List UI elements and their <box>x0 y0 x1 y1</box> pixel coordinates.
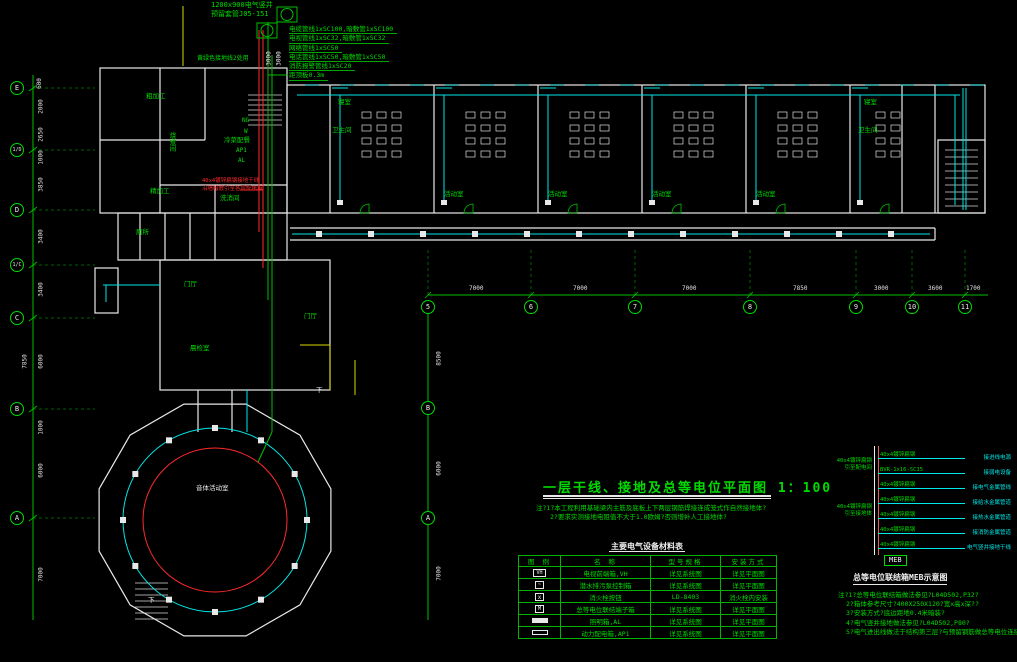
room-label: 厕所 <box>136 228 149 236</box>
meb-target-label: 接电气金属管线 <box>972 483 1011 491</box>
axis-bubble-10: 10 <box>905 300 919 314</box>
dimension-label: 7000 <box>469 285 483 292</box>
axis-bubble-D: D <box>10 203 24 217</box>
riser-dim-1: 3000 <box>266 51 273 65</box>
dimension-label: 3850 <box>38 177 45 191</box>
meb-row: 40x4镀锌扁钢接电气金属管线 <box>879 476 1005 491</box>
table-row: x消火栓按钮LD-8403消火栓内安装 <box>519 591 777 603</box>
equipment-table-title-text: 主要电气设备材料表 <box>609 542 685 552</box>
axis-bubble-1/C: 1/C <box>10 258 24 272</box>
lighting-box-icon <box>519 615 561 627</box>
meb-row: BVR-1x16-SC15接弱电设备 <box>879 461 1005 476</box>
meb-row: 40x4镀锌扁钢接进线电源 <box>879 446 1005 461</box>
table-header: 型号规格 <box>651 556 721 567</box>
grounding-red-group <box>143 30 287 592</box>
meb-conductor-spec: 40x4镀锌扁钢 <box>880 510 915 518</box>
ground-busbar-note-line1: 40x4镀锌扁钢接地干线 <box>202 176 259 184</box>
axis-bubble-7: 7 <box>628 300 642 314</box>
cell-install: 详见平面图 <box>721 627 777 639</box>
axis-bubble-inner-A: A <box>421 511 435 525</box>
meb-target-label: 电气竖井接地干线 <box>967 543 1011 551</box>
cell-name: 电视前端箱,VH <box>561 567 651 579</box>
meb-row: 40x4镀锌扁钢电气竖井接地干线 <box>879 536 1005 551</box>
door-swings-group <box>360 204 889 213</box>
dimension-label: 7000 <box>682 285 696 292</box>
cable-spec-line: 电缆管线1xSC100,暗敷管1xSC100 <box>289 25 397 34</box>
meb-note-line: 3?安装方式?底边距地0.4米暗装? <box>838 609 1017 618</box>
side-note: 黄绿色接地线2处用 <box>197 55 249 62</box>
meb-target-label: 接消防金属管道 <box>972 528 1011 536</box>
axis-bubble-11: 11 <box>958 300 972 314</box>
riser-label: AP1 <box>236 147 247 154</box>
equipment-table-title: 主要电气设备材料表 <box>518 541 776 552</box>
cell-model: 详见系统图 <box>651 603 721 615</box>
table-header: 图 例 <box>519 556 561 567</box>
meb-conductor-line <box>878 533 965 534</box>
cell-name: 照明箱,AL <box>561 615 651 627</box>
drawing-notes: 注?1?本工程利用基础梁内主筋及底板上下两层钢筋焊接连成笼式作自然接地体? 2?… <box>536 504 766 521</box>
axis-bubble-B: B <box>10 402 24 416</box>
table-row: ~潜水排污泵控制箱详见系统图详见平面图 <box>519 579 777 591</box>
room-label: 活动室 <box>444 190 464 198</box>
dimension-label: 3400 <box>38 229 45 243</box>
axis-bubble-6: 6 <box>524 300 538 314</box>
meb-bus-bottom-label-2: 引至接地体 <box>832 511 872 518</box>
meb-caption: 总等电位联结箱MEB示意图 <box>853 572 947 585</box>
columns-group <box>120 200 894 615</box>
dimension-label: 1000 <box>38 150 45 164</box>
room-label: 冷菜配餐 <box>224 136 250 144</box>
room-label: 晨检室 <box>190 344 210 352</box>
room-label: 活动室 <box>652 190 672 198</box>
riser-label: AL <box>238 157 245 164</box>
cell-model: 详见系统图 <box>651 567 721 579</box>
room-label: 卫生间 <box>858 126 878 134</box>
room-label: 洗消间 <box>220 194 240 202</box>
meb-bus-top-label-2: 引至配电间 <box>832 465 872 472</box>
meb-note-line: 注?1?总等电位联结箱做法参见?L04D502,P32? <box>838 591 1017 600</box>
cell-model: LD-8403 <box>651 591 721 603</box>
dimension-label: 7000 <box>573 285 587 292</box>
room-label: 寝室 <box>864 98 877 106</box>
axis-bubble-8: 8 <box>743 300 757 314</box>
room-label: 活动室 <box>548 190 568 198</box>
cell-name: 消火栓按钮 <box>561 591 651 603</box>
meb-target-label: 接弱电设备 <box>983 468 1011 476</box>
meb-bus-bottom-label-1: 40x4镀锌扁钢 <box>832 504 872 511</box>
ground-busbar-note-line2: 沿墙暗敷引至各层配电箱 <box>202 184 263 192</box>
cell-install: 详见平面图 <box>721 567 777 579</box>
cell-model: 详见系统图 <box>651 579 721 591</box>
meb-box-icon: M <box>519 603 561 615</box>
meb-conductor-line <box>878 473 965 474</box>
cell-name: 潜水排污泵控制箱 <box>561 579 651 591</box>
meb-note-line: 5?电气进出线做法于结构第三层?与预留钢筋做总等电位连接? <box>838 628 1017 637</box>
axis-bubble-5: 5 <box>421 300 435 314</box>
meb-conductor-line <box>878 503 965 504</box>
cable-spec-line: 网络管线1xSC50 <box>289 44 342 53</box>
cell-install: 详见平面图 <box>721 615 777 627</box>
dimension-label: 7850 <box>793 285 807 292</box>
meb-conductor-spec: 40x4镀锌扁钢 <box>880 525 915 533</box>
table-row: M总等电位联结端子箱详见系统图详见平面图 <box>519 603 777 615</box>
power-box-icon <box>519 627 561 639</box>
room-label: 门厅 <box>184 280 197 288</box>
meb-conductor-line <box>878 518 965 519</box>
room-label: 音体活动室 <box>196 484 229 492</box>
room-label: 下 <box>316 386 323 394</box>
meb-box: MEB <box>884 555 907 566</box>
dimension-label: 7000 <box>436 566 443 580</box>
riser-label: W <box>244 128 248 135</box>
dimension-label: 6000 <box>38 354 45 368</box>
dimension-label: 7850 <box>22 354 29 368</box>
cell-name: 总等电位联结端子箱 <box>561 603 651 615</box>
classroom-desks-group <box>362 112 900 157</box>
meb-bus-top-label: 40x4镀锌扁钢 引至配电间 <box>832 458 872 471</box>
meb-schematic: 40x4镀锌扁钢接进线电源BVR-1x16-SC15接弱电设备40x4镀锌扁钢接… <box>836 446 1012 566</box>
meb-bus-bottom-label: 40x4镀锌扁钢 引至接地体 <box>832 504 872 517</box>
meb-conductor-line <box>878 458 965 459</box>
dimension-label: 1000 <box>38 420 45 434</box>
axis-bubble-A: A <box>10 511 24 525</box>
room-label: 烧煮间 <box>168 132 176 152</box>
dimension-label: 8500 <box>436 351 443 365</box>
cable-spec-line: 电话管线1xSC50,暗敷管1xSC50 <box>289 53 389 62</box>
dimension-label: 2650 <box>38 127 45 141</box>
meb-conductor-line <box>878 488 965 489</box>
drawing-note-1: 注?1?本工程利用基础梁内主筋及底板上下两层钢筋焊接连成笼式作自然接地体? <box>536 504 766 513</box>
cable-spec-list: 电缆管线1xSC100,暗敷管1xSC100电视管线1xSC32,暗敷管1xSC… <box>289 25 397 81</box>
shaft-label-line1: 1200x900电气竖井 <box>211 1 273 9</box>
hydrant-button-icon: x <box>519 591 561 603</box>
table-header: 名 称 <box>561 556 651 567</box>
meb-target-label: 接进线电源 <box>983 453 1011 461</box>
cell-install: 消火栓内安装 <box>721 591 777 603</box>
cell-install: 详见平面图 <box>721 579 777 591</box>
room-label: 门厅 <box>304 312 317 320</box>
cable-spec-line: 距顶板0.3m <box>289 71 328 80</box>
pump-box-icon: ~ <box>519 579 561 591</box>
meb-notes: 注?1?总等电位联结箱做法参见?L04D502,P32?2?箱体参考尺寸?400… <box>838 591 1017 637</box>
cad-drawing-canvas: 1200x900电气竖井 预留套管J05-151 电缆管线1xSC100,暗敷管… <box>0 0 1017 662</box>
room-label: 下 <box>148 596 155 604</box>
meb-target-label: 接给水金属管道 <box>972 498 1011 506</box>
meb-row: 40x4镀锌扁钢接热水金属管道 <box>879 506 1005 521</box>
meb-note-line: 4?电气竖井接地做法参见?L04D502,P80? <box>838 619 1017 628</box>
meb-row: 40x4镀锌扁钢接给水金属管道 <box>879 491 1005 506</box>
drawing-title: 一层干线、接地及总等电位平面图 1：100 <box>543 477 832 496</box>
table-row: 照明箱,AL详见系统图详见平面图 <box>519 615 777 627</box>
meb-conductor-spec: BVR-1x16-SC15 <box>880 467 923 473</box>
dimension-label: 2000 <box>38 99 45 113</box>
equipment-table: 图 例名 称型号规格安装方式 VH电视前端箱,VH详见系统图详见平面图~潜水排污… <box>518 555 777 639</box>
axis-bubble-1/D: 1/D <box>10 143 24 157</box>
meb-target-label: 接热水金属管道 <box>972 513 1011 521</box>
dimension-label: 6000 <box>38 463 45 477</box>
cell-install: 详见平面图 <box>721 603 777 615</box>
room-label: 粗加工 <box>146 92 166 100</box>
dimension-label: 600 <box>36 78 43 89</box>
riser-dim-2: 3000 <box>276 51 283 65</box>
meb-conductor-line <box>878 548 965 549</box>
equipment-table-header-row: 图 例名 称型号规格安装方式 <box>519 556 777 567</box>
vh-box-icon: VH <box>519 567 561 579</box>
walls-group <box>95 68 985 432</box>
meb-conductor-spec: 40x4镀锌扁钢 <box>880 480 915 488</box>
shaft-label-line2: 预留套管J05-151 <box>211 10 269 18</box>
dimension-label: 1700 <box>966 285 980 292</box>
drawing-note-2: 2?要求实测接地电阻值不大于1.0欧姆?否则增补人工接地体? <box>536 513 766 522</box>
cable-spec-line: 电视管线1xSC32,暗敷管1xSC32 <box>289 34 389 43</box>
cell-model: 详见系统图 <box>651 627 721 639</box>
meb-conductor-spec: 40x4镀锌扁钢 <box>880 450 915 458</box>
dimension-label: 3400 <box>38 282 45 296</box>
dimension-label: 3000 <box>874 285 888 292</box>
dimension-label: 7000 <box>38 567 45 581</box>
cell-name: 动力配电箱,AP1 <box>561 627 651 639</box>
room-label: 卫生间 <box>332 126 352 134</box>
meb-conductor-spec: 40x4镀锌扁钢 <box>880 540 915 548</box>
room-label: 精加工 <box>150 187 170 195</box>
table-row: VH电视前端箱,VH详见系统图详见平面图 <box>519 567 777 579</box>
room-label: 活动室 <box>756 190 776 198</box>
table-header: 安装方式 <box>721 556 777 567</box>
cell-model: 详见系统图 <box>651 615 721 627</box>
table-row: 动力配电箱,AP1详见系统图详见平面图 <box>519 627 777 639</box>
dimension-label: 6000 <box>436 461 443 475</box>
round-hall-group <box>99 404 331 636</box>
riser-label: NG <box>242 117 249 124</box>
title-underline <box>543 495 771 499</box>
meb-bus-top-label-1: 40x4镀锌扁钢 <box>832 458 872 465</box>
axis-bubble-9: 9 <box>849 300 863 314</box>
meb-row: 40x4镀锌扁钢接消防金属管道 <box>879 521 1005 536</box>
meb-conductor-spec: 40x4镀锌扁钢 <box>880 495 915 503</box>
axis-bubble-C: C <box>10 311 24 325</box>
dimension-label: 3600 <box>928 285 942 292</box>
axis-bubble-E: E <box>10 81 24 95</box>
axis-bubble-inner-B: B <box>421 401 435 415</box>
room-label: 寝室 <box>338 98 351 106</box>
